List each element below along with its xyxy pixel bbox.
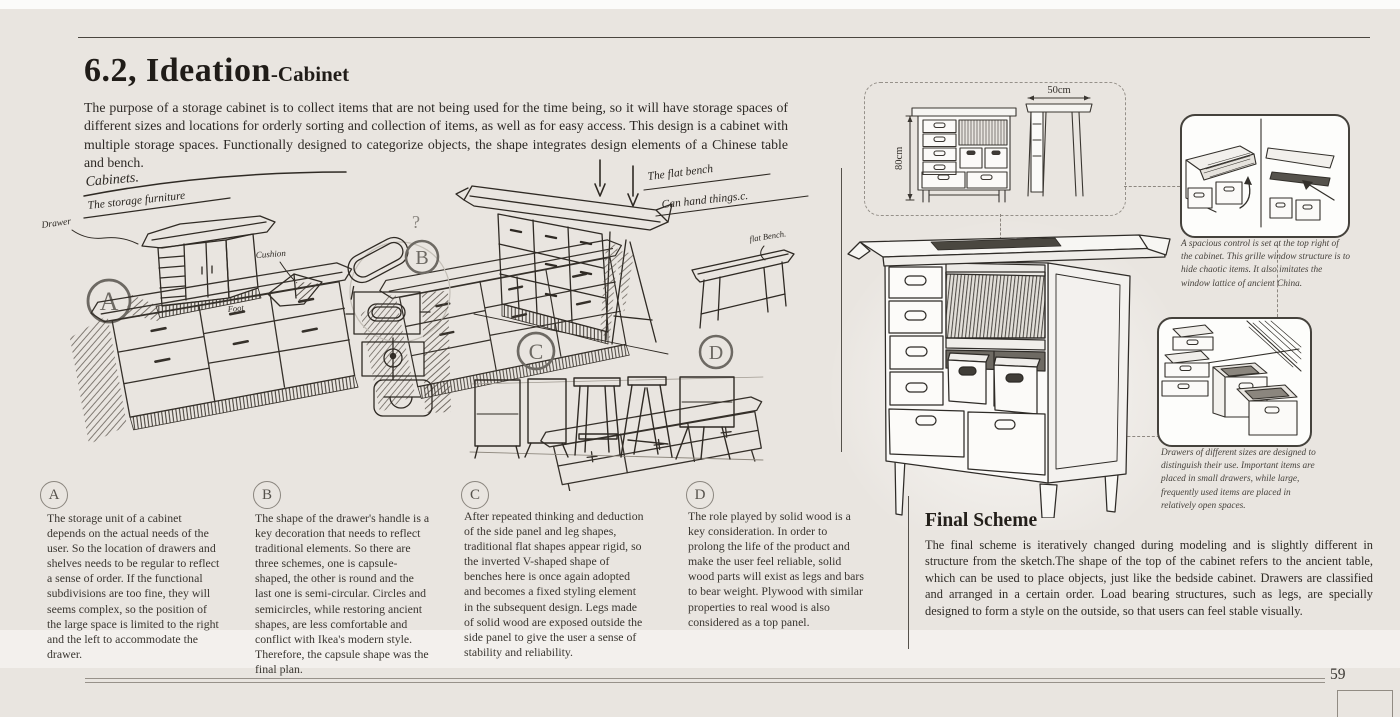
annotation-text-c: After repeated thinking and deduction of… (464, 509, 648, 660)
dimension-drawings: 80cm 50cm (866, 84, 1124, 212)
render-top-slab (848, 235, 1170, 266)
section-subtitle: -Cabinet (271, 62, 349, 86)
side-view-drawing: 50cm (1026, 85, 1092, 196)
leg-variant-splayed (676, 377, 734, 459)
grille-closed-view (1266, 148, 1334, 220)
leg-variant-aframe (621, 377, 672, 457)
annotation-marker-c: C (461, 481, 489, 509)
header-rule (78, 37, 1370, 38)
connector-dash-to-callout1 (1124, 186, 1180, 187)
footer-rule (85, 678, 1325, 683)
svg-text:The flat bench: The flat bench (647, 163, 714, 183)
page-title: 6.2, Ideation-Cabinet (84, 52, 349, 90)
portfolio-page: 6.2, Ideation-Cabinet The purpose of a s… (0, 0, 1400, 717)
width-dimension: 50cm (1028, 85, 1090, 101)
render-small-drawers (889, 267, 943, 405)
handwriting-drawer-label: Drawer (40, 217, 138, 244)
sketch-marker-d: D (700, 336, 732, 368)
handwriting-cushion: Cushion (255, 248, 286, 260)
render-side-panel (1048, 263, 1130, 483)
sketch-marker-c: C (518, 333, 554, 369)
drawers-caption: Drawers of different sizes are designed … (1161, 447, 1323, 513)
svg-text:D: D (709, 342, 723, 364)
height-label: 80cm (894, 147, 905, 170)
annotation-marker-b: B (253, 481, 281, 509)
final-scheme-text: The final scheme is iteratively changed … (925, 537, 1373, 619)
handwriting-flat-bench-label: flat Bench. (749, 228, 787, 244)
ideation-sketches: Cabinets. The storage furniture Drawer (28, 146, 840, 491)
sketch-leg-variants (470, 377, 763, 460)
annotation-text-a: The storage unit of a cabinet depends on… (47, 511, 221, 662)
final-cabinet-render (843, 226, 1173, 518)
grille-open-view (1186, 146, 1256, 212)
top-margin-strip (0, 0, 1400, 9)
grille-detail-callout (1180, 114, 1350, 238)
render-grille-window (946, 263, 1045, 338)
section-number-title: 6.2, Ideation (84, 52, 271, 89)
drawers-detail-drawing (1159, 319, 1304, 439)
sketch-sideboard-3 (539, 396, 770, 491)
sketch-sideboard-2 (355, 238, 640, 413)
handwriting-drawer: Drawer (40, 217, 72, 231)
svg-text:B: B (415, 247, 428, 269)
sketch-render-divider (841, 168, 842, 452)
drawers-detail-callout (1157, 317, 1312, 447)
front-view-drawing: 80cm (894, 108, 1016, 202)
final-scheme-divider (908, 496, 909, 649)
render-shelf-rail (946, 338, 1045, 350)
annotation-marker-d: D (686, 481, 714, 509)
large-open-drawers (1213, 363, 1297, 435)
small-open-drawers (1162, 325, 1213, 396)
svg-text:Can hand things.c.: Can hand things.c. (661, 190, 749, 211)
page-number: 59 (1330, 666, 1346, 684)
handwriting-cabinets-note: Cabinets. The storage furniture (84, 170, 346, 218)
annotation-marker-a: A (40, 481, 68, 509)
sketch-marker-b: B (406, 241, 438, 273)
sketch-capsule-handle (334, 233, 416, 300)
svg-text:C: C (529, 339, 544, 364)
width-label: 50cm (1047, 85, 1070, 96)
sketch-bench-d: flat Bench. (692, 228, 794, 328)
leg-variant-stool (574, 378, 620, 455)
grille-caption: A spacious control is set at the top rig… (1181, 238, 1351, 291)
annotation-text-b: The shape of the drawer's handle is a ke… (255, 511, 431, 677)
annotation-text-d: The role played by solid wood is a key c… (688, 509, 864, 630)
handwriting-flat-bench-notes: The flat bench Can hand things.c. (644, 163, 808, 216)
question-mark: ? (412, 212, 420, 232)
corner-box (1337, 690, 1393, 717)
leg-variant-panel (475, 380, 520, 458)
height-dimension: 80cm (894, 116, 914, 200)
final-scheme-title: Final Scheme (925, 510, 1037, 532)
grille-detail-drawing (1182, 116, 1342, 230)
